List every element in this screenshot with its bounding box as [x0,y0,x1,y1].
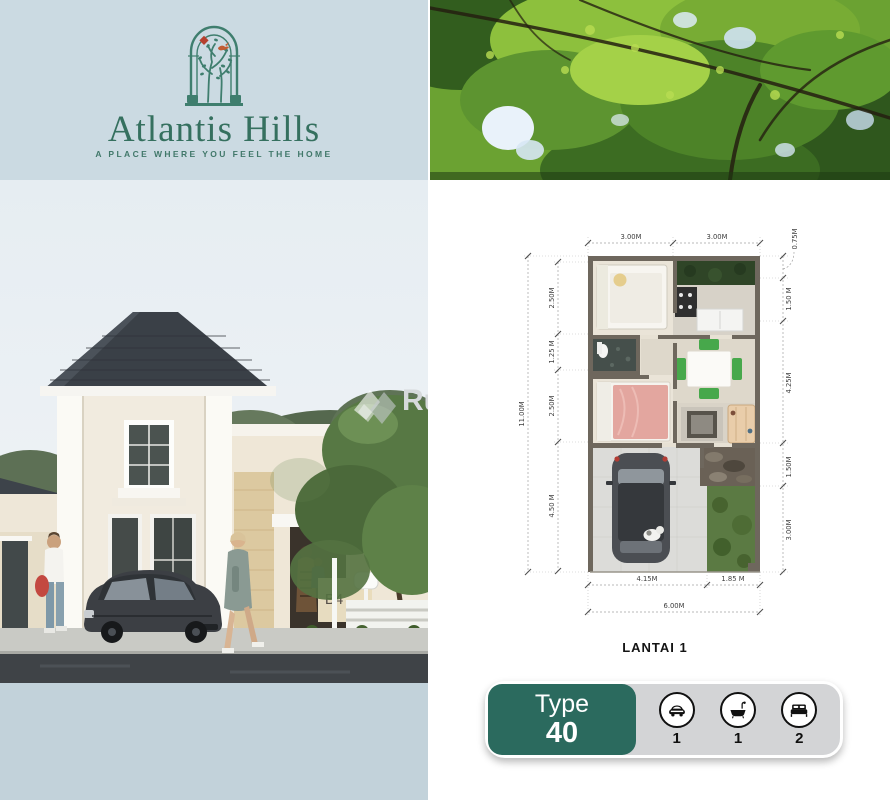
svg-text:11.00M: 11.00M [518,401,526,426]
floor-title: LANTAI 1 [500,640,810,655]
floor-plan: 3.00M 3.00M 11.00M [500,225,810,645]
feature-count: 1 [672,730,680,747]
property-brochure: Atlantis Hills A PLACE WHERE YOU FEEL TH… [0,0,890,800]
bottom-dimensions: 4.15M 1.85 M [585,575,763,588]
feature-count: 2 [795,730,803,747]
svg-text:3.00M: 3.00M [785,519,793,540]
svg-text:4.25M: 4.25M [785,372,793,393]
type-value: 40 [546,719,578,748]
feature-bathroom: 1 [720,692,756,747]
car-icon [659,692,695,728]
feature-list: 1 1 [636,684,840,755]
feature-carport: 1 [659,692,695,747]
type-badge-label-block: Type 40 [488,684,636,755]
feature-bedroom: 2 [781,692,817,747]
tree-canopy-photo [430,0,890,180]
svg-text:6.00M: 6.00M [664,602,685,610]
bed-icon [781,692,817,728]
type-label: Type [535,692,589,717]
svg-text:3.00M: 3.00M [707,233,728,241]
feature-count: 1 [734,730,742,747]
car-top-view [606,453,676,563]
left-dimensions: 2.50M 1.25 M 2.50M 4.50 M [548,259,561,574]
svg-text:2.50M: 2.50M [548,395,556,416]
svg-text:4.50 M: 4.50 M [548,494,556,517]
arch-window-logo-icon [0,16,428,113]
top-dimension: 3.00M 3.00M [585,233,763,246]
bathtub-icon [720,692,756,728]
right-dimensions: 0.75M 1.50 M 4.25M 1.50M 3.00M [780,228,799,575]
floor-plan-panel: 3.00M 3.00M 11.00M [428,180,890,800]
type-badge: Type 40 1 [485,681,843,758]
house-render-photo: B4 [0,180,428,683]
svg-text:1.85 M: 1.85 M [721,575,744,583]
footer-strip [0,683,428,800]
svg-text:3.00M: 3.00M [621,233,642,241]
bottom-total-dimension: 6.00M [585,602,763,615]
svg-text:4.15M: 4.15M [637,575,658,583]
svg-text:1.50 M: 1.50 M [785,287,793,310]
brand-tagline: A PLACE WHERE YOU FEEL THE HOME [0,149,428,159]
svg-text:1.50M: 1.50M [785,456,793,477]
brand-name: Atlantis Hills [0,108,428,151]
svg-text:1.25 M: 1.25 M [548,340,556,363]
svg-text:2.50M: 2.50M [548,287,556,308]
left-total-dimension: 11.00M [518,253,531,575]
road [0,654,428,683]
svg-text:0.75M: 0.75M [791,228,799,249]
brand-panel: Atlantis Hills A PLACE WHERE YOU FEEL TH… [0,0,428,180]
bird-icon [218,42,229,50]
